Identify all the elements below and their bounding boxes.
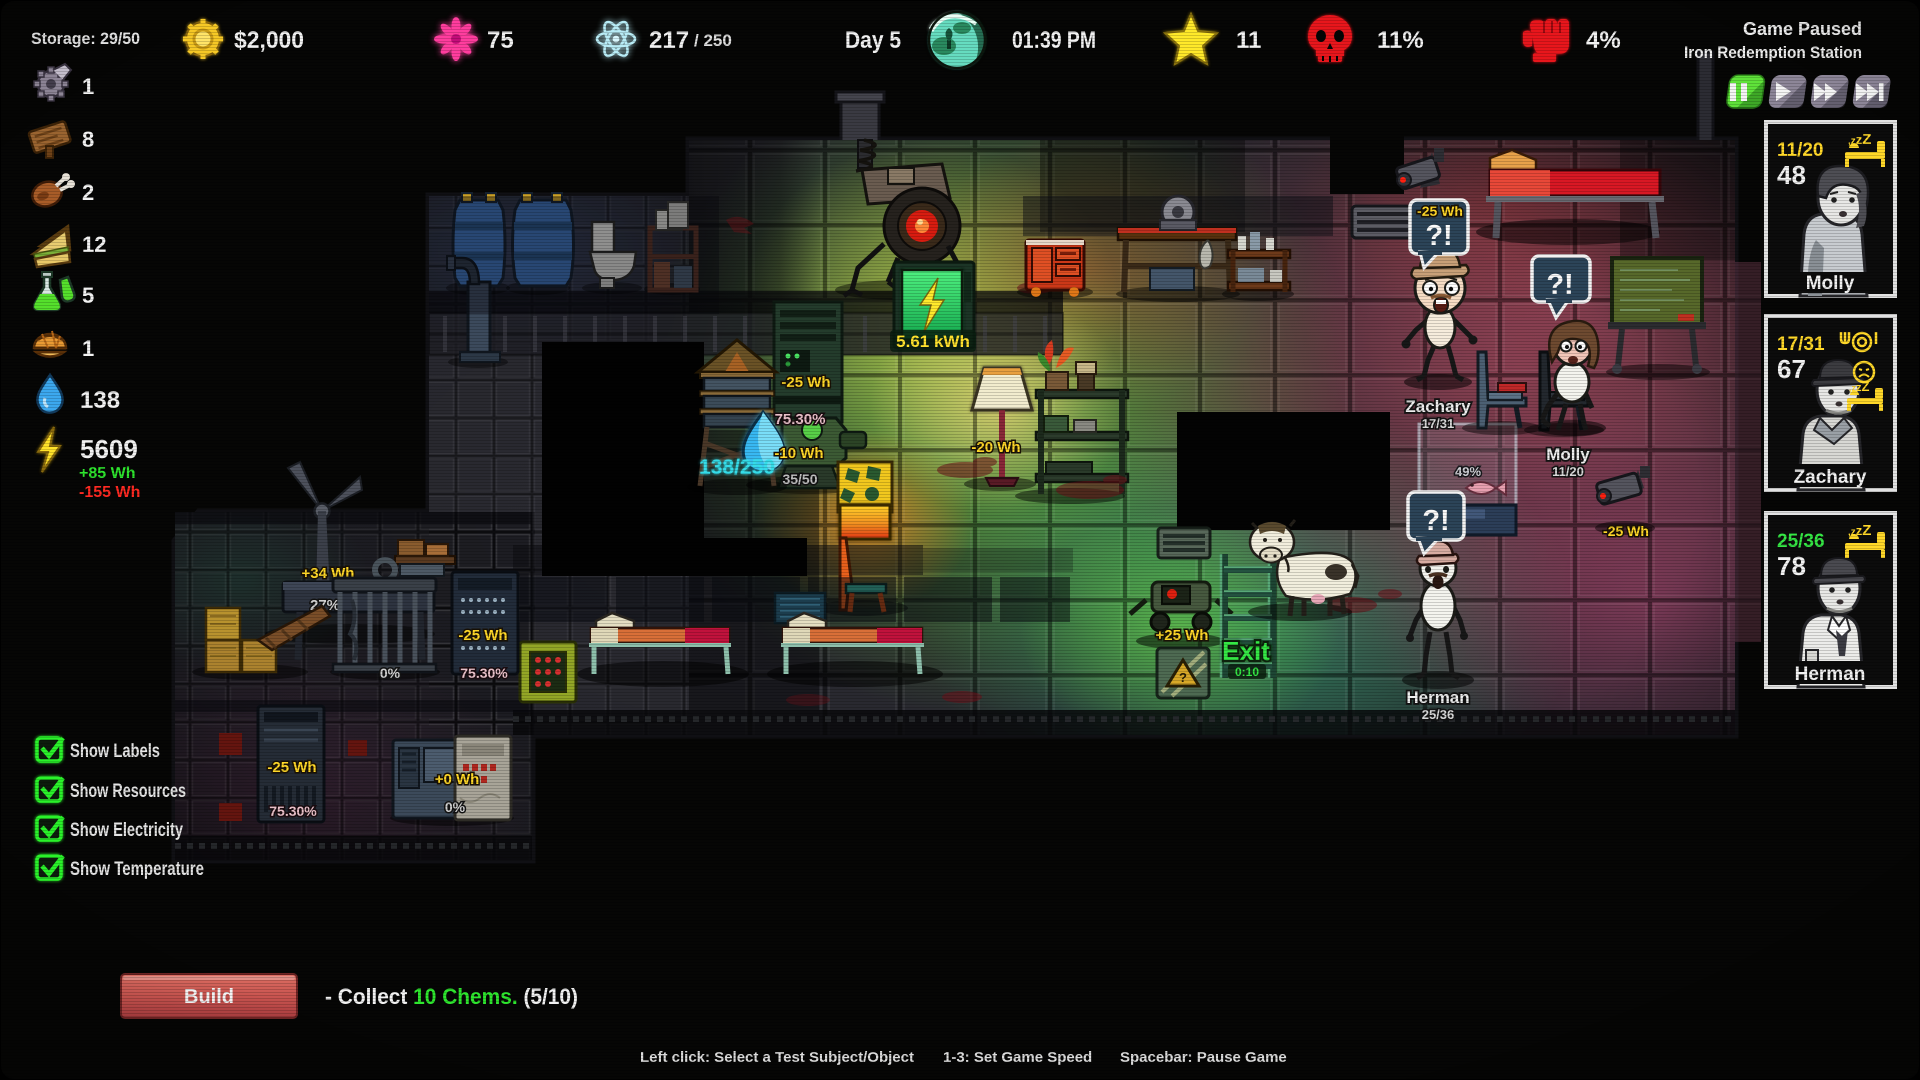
svg-text:Exit: Exit	[1222, 636, 1270, 666]
svg-text:75.30%: 75.30%	[269, 803, 317, 819]
svg-text:Show Resources: Show Resources	[70, 781, 186, 802]
svg-text:01:39 PM: 01:39 PM	[1012, 27, 1096, 54]
svg-text:25/36: 25/36	[1777, 531, 1825, 552]
svg-text:+0 Wh: +0 Wh	[435, 771, 480, 788]
svg-text:78: 78	[1777, 551, 1806, 581]
svg-text:8: 8	[82, 127, 94, 152]
svg-text:1: 1	[82, 74, 94, 99]
svg-text:Day 5: Day 5	[845, 27, 901, 54]
svg-text:0:10: 0:10	[1235, 665, 1259, 679]
svg-text:Show Labels: Show Labels	[70, 741, 160, 762]
svg-text:-10 Wh: -10 Wh	[774, 445, 823, 462]
svg-text:138/250: 138/250	[699, 456, 775, 479]
svg-text:17/31: 17/31	[1422, 416, 1455, 431]
svg-text:4%: 4%	[1586, 27, 1621, 54]
svg-text:Left click: Select a Test Subj: Left click: Select a Test Subject/Object	[640, 1049, 914, 1066]
svg-text:11/20: 11/20	[1552, 464, 1584, 479]
svg-text:Spacebar: Pause Game: Spacebar: Pause Game	[1120, 1049, 1287, 1066]
svg-text:0%: 0%	[380, 665, 401, 681]
svg-text:Herman: Herman	[1795, 664, 1866, 685]
svg-text:- Collect 10 Chems. (5/10): - Collect 10 Chems. (5/10)	[325, 984, 578, 1009]
svg-text:?: ?	[1179, 670, 1187, 685]
svg-text:?!: ?!	[1422, 505, 1449, 537]
svg-text:75.30%: 75.30%	[775, 411, 826, 428]
svg-text:17/31: 17/31	[1777, 334, 1825, 355]
svg-text:1-3: Set Game Speed: 1-3: Set Game Speed	[943, 1049, 1092, 1066]
svg-text:2: 2	[82, 180, 94, 205]
svg-text:11: 11	[1236, 27, 1261, 54]
svg-text:Build: Build	[184, 986, 234, 1008]
svg-text:-25 Wh: -25 Wh	[781, 374, 830, 391]
svg-text:11/20: 11/20	[1777, 140, 1824, 161]
svg-text:25/36: 25/36	[1422, 707, 1455, 722]
svg-text:-25 Wh: -25 Wh	[1417, 203, 1463, 219]
svg-text:75: 75	[487, 27, 514, 54]
svg-text:+25 Wh: +25 Wh	[1156, 627, 1209, 644]
svg-text:5609: 5609	[80, 434, 138, 464]
svg-text:Iron Redemption Station: Iron Redemption Station	[1684, 43, 1862, 62]
svg-text:?!: ?!	[1425, 220, 1452, 252]
svg-text:-155 Wh: -155 Wh	[79, 484, 140, 501]
svg-text:?!: ?!	[1546, 269, 1573, 301]
svg-text:12: 12	[82, 232, 106, 257]
svg-text:Molly: Molly	[1806, 273, 1855, 294]
svg-text:35/50: 35/50	[782, 471, 817, 487]
svg-text:5: 5	[82, 283, 94, 308]
svg-text:-25 Wh: -25 Wh	[1603, 523, 1649, 539]
svg-text:+85 Wh: +85 Wh	[79, 465, 135, 482]
svg-text:-25 Wh: -25 Wh	[267, 759, 316, 776]
svg-text:Game Paused: Game Paused	[1743, 19, 1862, 39]
svg-text:Storage: 29/50: Storage: 29/50	[31, 29, 140, 48]
svg-text:-25 Wh: -25 Wh	[458, 627, 507, 644]
svg-text:48: 48	[1777, 160, 1806, 190]
svg-text:5.61 kWh: 5.61 kWh	[896, 332, 970, 351]
svg-text:75.30%: 75.30%	[460, 665, 508, 681]
svg-text:217: 217	[649, 27, 689, 54]
svg-text:138: 138	[80, 387, 120, 414]
svg-text:0%: 0%	[445, 799, 466, 815]
svg-text:67: 67	[1777, 354, 1806, 384]
svg-text:$2,000: $2,000	[234, 27, 304, 54]
svg-text:11%: 11%	[1377, 27, 1424, 54]
svg-text:-20 Wh: -20 Wh	[971, 439, 1020, 456]
svg-text:/ 250: / 250	[694, 31, 732, 50]
svg-text:Molly: Molly	[1546, 445, 1590, 464]
svg-text:Herman: Herman	[1406, 688, 1469, 707]
svg-text:Zachary: Zachary	[1405, 397, 1471, 416]
svg-text:Show Temperature: Show Temperature	[70, 859, 204, 880]
svg-text:49%: 49%	[1455, 464, 1481, 479]
svg-text:Show Electricity: Show Electricity	[70, 820, 183, 841]
svg-text:Zachary: Zachary	[1794, 467, 1867, 488]
svg-text:1: 1	[82, 336, 94, 361]
